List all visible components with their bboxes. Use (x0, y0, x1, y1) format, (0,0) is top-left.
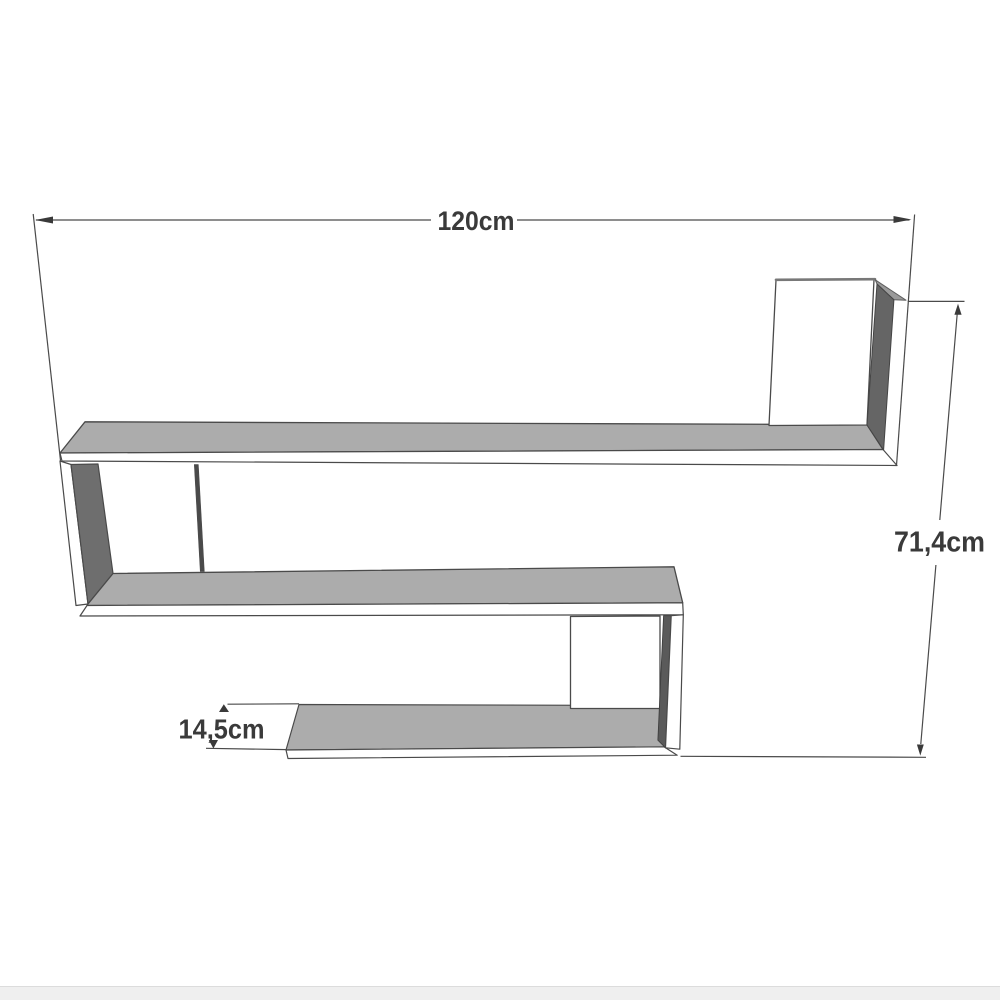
svg-text:71,4cm: 71,4cm (894, 527, 985, 559)
svg-text:14,5cm: 14,5cm (179, 714, 265, 745)
svg-text:120cm: 120cm (438, 206, 515, 236)
